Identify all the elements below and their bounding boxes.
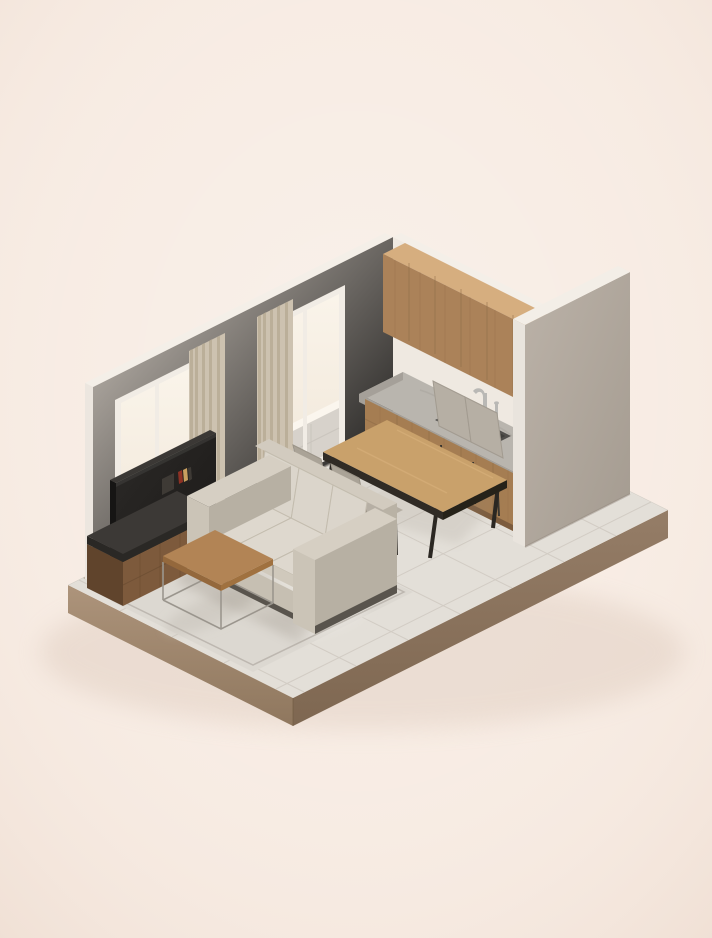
- isometric-room-render: [0, 0, 712, 938]
- render-canvas: [0, 0, 712, 938]
- window-mullion: [303, 310, 307, 466]
- partition-end-edge: [513, 319, 525, 547]
- armrest-front: [293, 549, 315, 634]
